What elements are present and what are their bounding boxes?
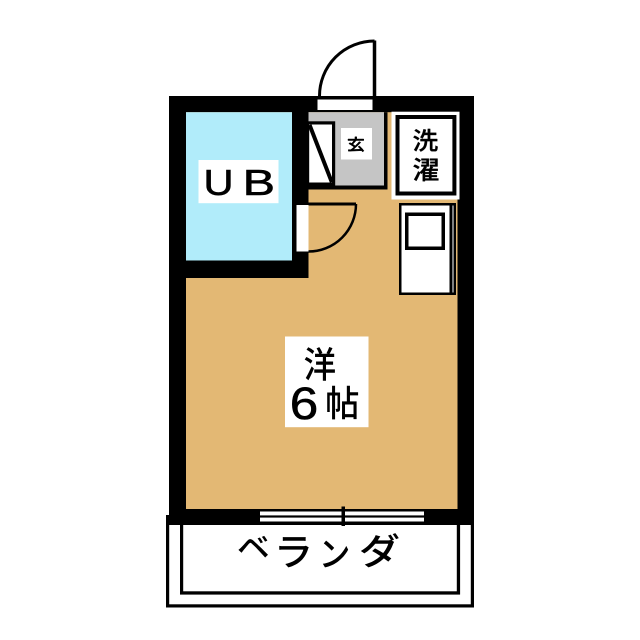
svg-text:B: B — [243, 163, 275, 204]
svg-text:6: 6 — [290, 378, 319, 429]
svg-text:U: U — [203, 163, 233, 203]
